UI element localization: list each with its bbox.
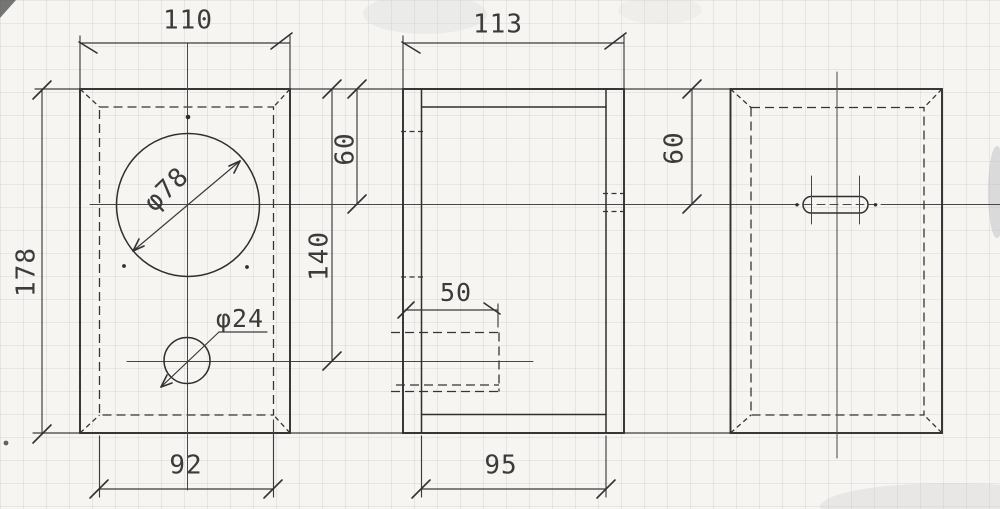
- front-inner-width-dimension: 92: [90, 420, 282, 498]
- dim-label-driver-axis: 60: [331, 132, 361, 165]
- top-shadow-2: [618, 0, 702, 24]
- mounting-dot-top: [186, 115, 191, 120]
- mounting-dot-left: [122, 264, 126, 268]
- dim-label-duct-hole: φ24: [216, 304, 264, 333]
- back-corner-chamfers: [731, 89, 943, 433]
- dim-label-front-width: 110: [163, 6, 213, 36]
- front-height-dimension: 178: [12, 81, 52, 443]
- dim-label-side-depth: 113: [473, 10, 523, 40]
- ink-speck: [4, 441, 9, 446]
- right-edge-shadow: [988, 146, 1000, 238]
- side-inner-depth-dimension: 95: [412, 436, 615, 498]
- terminal-axis-dimension: 60: [660, 80, 702, 213]
- three-view-drawing: φ78 φ24 110: [0, 0, 1000, 509]
- mounting-dot-right: [245, 265, 249, 269]
- dim-label-duct-length: 50: [440, 278, 472, 307]
- dim-label-terminal-axis: 60: [660, 131, 690, 164]
- front-outer-outline: [80, 89, 290, 433]
- duct-axis-dimension: 140: [305, 80, 342, 370]
- side-view: 113 60 140 50: [305, 10, 628, 499]
- back-view: 60: [660, 72, 943, 458]
- dim-label-driver-hole: φ78: [138, 161, 195, 217]
- dim-label-side-inner-depth: 95: [484, 451, 517, 481]
- side-outer-outline: [403, 89, 624, 433]
- front-inner-cavity-hidden: [100, 107, 274, 415]
- duct-hole-dimension: φ24: [161, 304, 267, 387]
- terminal-slot: [791, 176, 881, 224]
- front-width-dimension: 110: [79, 6, 292, 89]
- dim-label-duct-axis: 140: [305, 231, 335, 281]
- duct-length-dimension: 50: [398, 278, 500, 327]
- front-view: φ78 φ24 110: [12, 6, 293, 499]
- top-shadow-1: [363, 0, 487, 34]
- front-corner-chamfers: [80, 89, 290, 433]
- dim-label-front-height: 178: [12, 247, 42, 297]
- back-outer-outline: [731, 89, 943, 433]
- technical-drawing-sheet: φ78 φ24 110: [0, 0, 1000, 509]
- dim-label-front-inner-width: 92: [169, 451, 202, 481]
- driver-hole-dimension: φ78: [133, 161, 240, 251]
- driver-axis-dimension: 60: [331, 80, 367, 213]
- corner-smudge: [0, 0, 16, 18]
- bottom-edge-shadow: [820, 483, 1000, 509]
